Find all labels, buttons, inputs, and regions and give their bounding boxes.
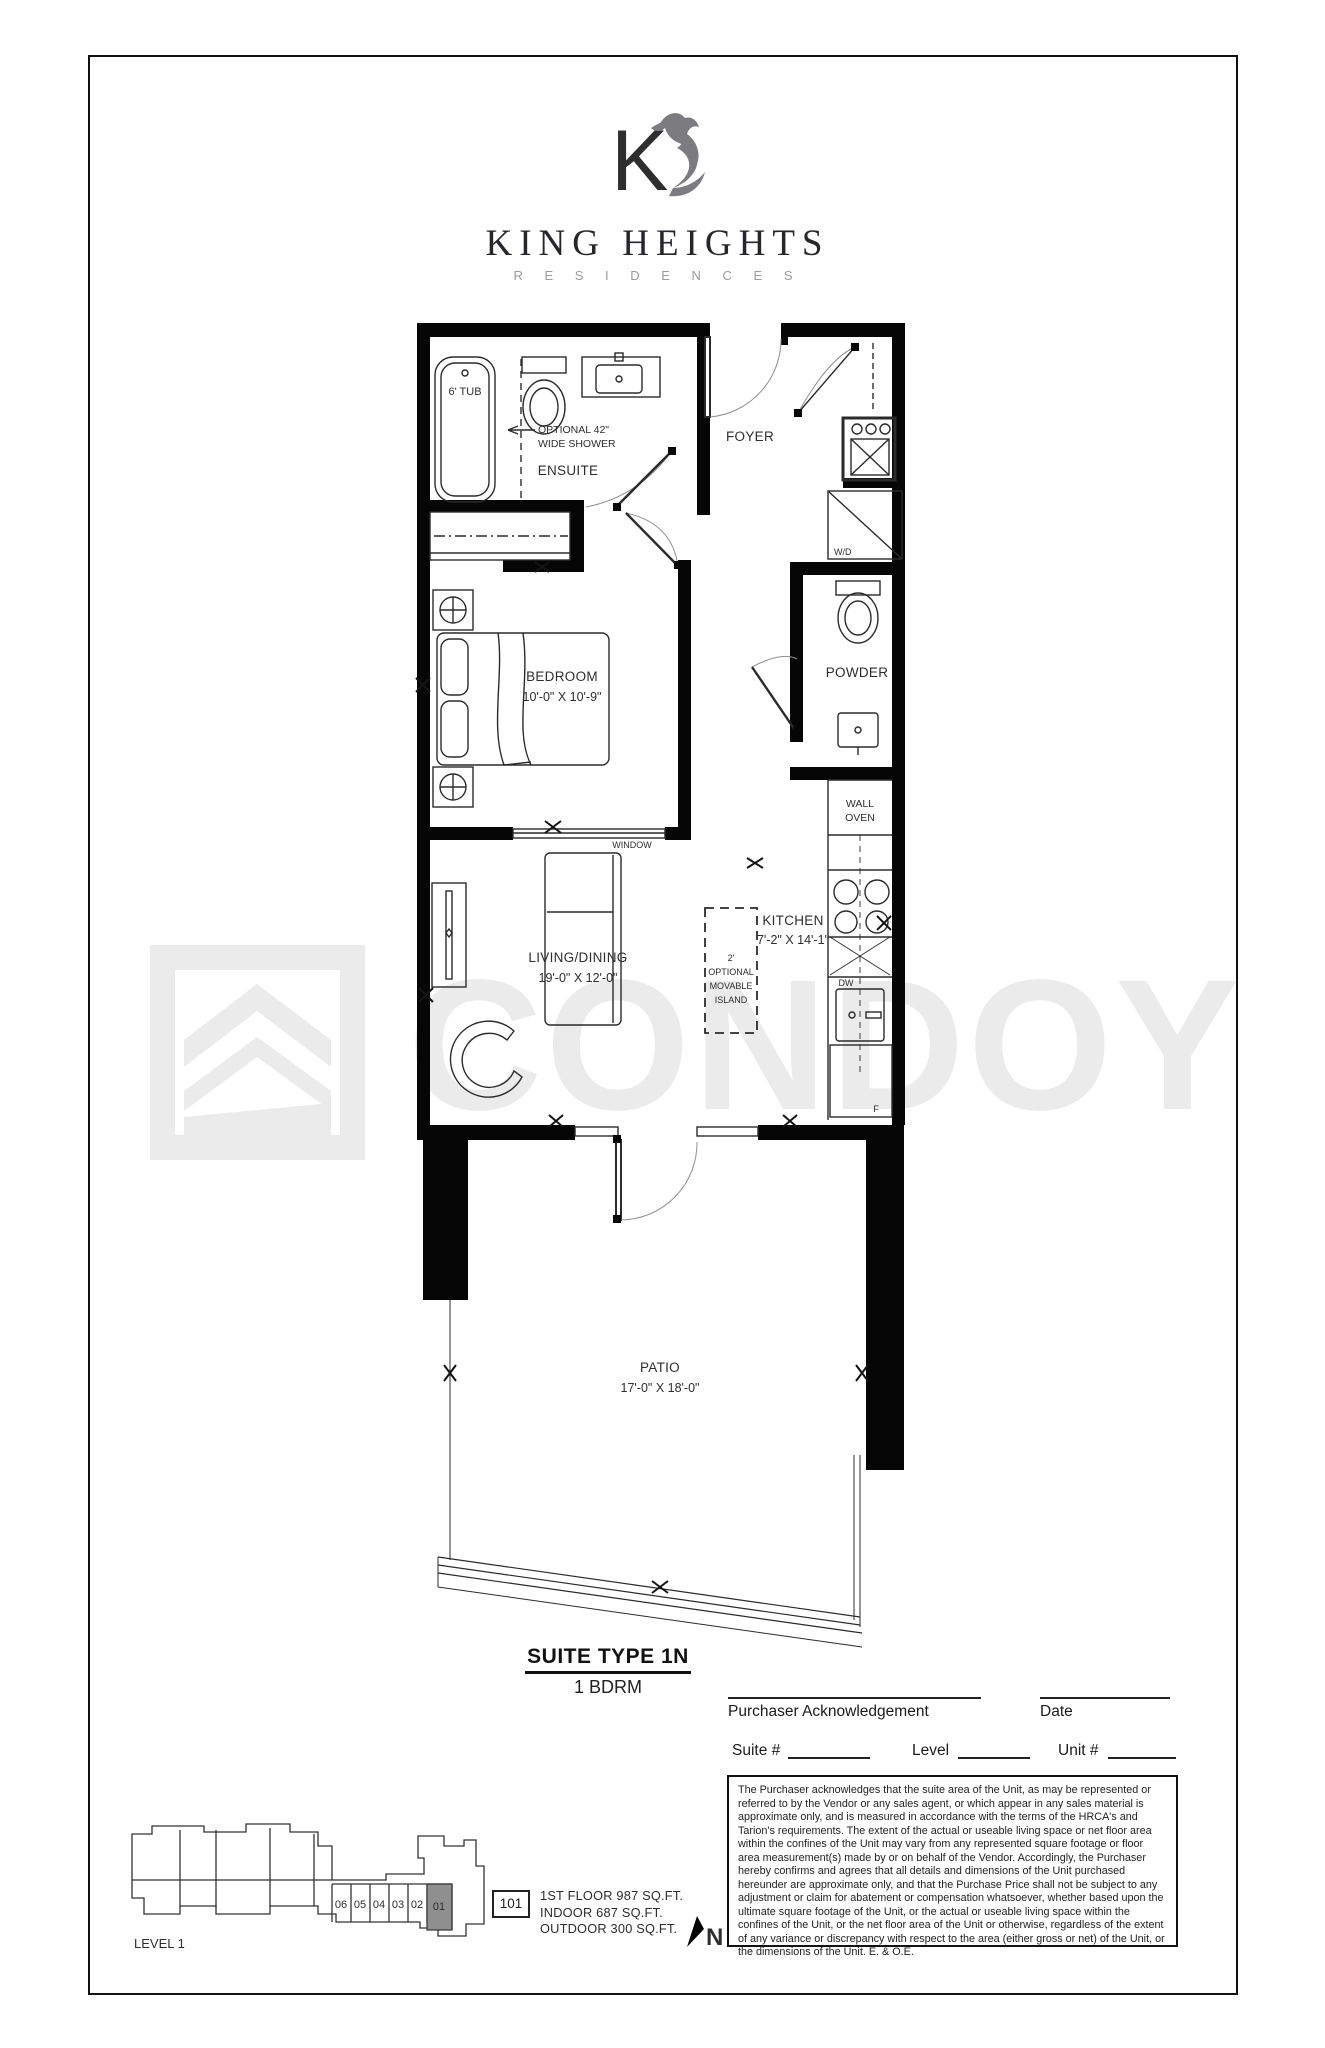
fridge-label: F <box>873 1104 879 1114</box>
north-arrow: N <box>684 1914 730 1950</box>
purchaser-signature-label: Purchaser Acknowledgement <box>728 1703 929 1721</box>
unit-number-label: Unit # <box>1058 1742 1099 1760</box>
patio-dims: 17'-0" X 18'-0" <box>621 1381 700 1395</box>
room-labels: 6' TUB OPTIONAL 42" WIDE SHOWER ENSUITE … <box>448 386 888 1395</box>
wd-label: W/D <box>834 547 852 557</box>
brand-tagline: R E S I D E N C E S <box>390 268 925 283</box>
shower-note-line2: WIDE SHOWER <box>538 438 616 450</box>
suite-title-block: SUITE TYPE 1N 1 BDRM <box>468 1645 748 1698</box>
keyplan-unit-05: 05 <box>354 1899 366 1911</box>
suite-number-line <box>788 1757 870 1759</box>
floorplan-drawing: 6' TUB OPTIONAL 42" WIDE SHOWER ENSUITE … <box>410 315 910 1655</box>
island-line1: 2' <box>728 953 735 963</box>
keyplan-unit-01: 01 <box>433 1901 445 1913</box>
keyplan-unit-02: 02 <box>411 1899 423 1911</box>
dimension-ticks <box>416 562 891 1593</box>
living-dims: 19'-0" X 12'-0" <box>539 971 618 985</box>
floorplan-page: { "brand": { "monogram": "K", "name": "K… <box>0 0 1325 2048</box>
kitchen-label: KITCHEN <box>762 913 823 928</box>
date-label: Date <box>1040 1703 1073 1721</box>
suite-subtitle: 1 BDRM <box>468 1677 748 1698</box>
unit-areas: 1ST FLOOR 987 SQ.FT. INDOOR 687 SQ.FT. O… <box>540 1888 683 1938</box>
legal-disclaimer-text: The Purchaser acknowledges that the suit… <box>729 1777 1176 1967</box>
brand-name: KING HEIGHTS <box>390 222 925 265</box>
keyplan-unit-06: 06 <box>335 1899 347 1911</box>
level-label: Level <box>912 1742 949 1760</box>
foyer-label: FOYER <box>726 429 774 444</box>
wall-oven-line2: OVEN <box>845 812 875 824</box>
island-line4: ISLAND <box>715 995 748 1005</box>
shower-note-line1: OPTIONAL 42" <box>538 424 609 436</box>
ensuite-label: ENSUITE <box>538 463 599 478</box>
purchaser-signature-line <box>728 1697 981 1699</box>
island-line2: OPTIONAL <box>708 967 754 977</box>
living-label: LIVING/DINING <box>528 950 627 965</box>
keyplan-unit-04: 04 <box>373 1899 385 1911</box>
north-arrow-icon <box>687 1916 704 1947</box>
date-line <box>1040 1697 1170 1699</box>
suite-type-title: SUITE TYPE 1N <box>525 1645 691 1674</box>
patio-label: PATIO <box>640 1360 680 1375</box>
wall-oven-line1: WALL <box>846 798 874 810</box>
bedroom-label: BEDROOM <box>526 669 598 684</box>
bedroom-dims: 10'-0" X 10'-9" <box>523 690 602 704</box>
unit-number-line <box>1108 1757 1176 1759</box>
window-label: WINDOW <box>612 840 652 850</box>
plan-lines <box>430 343 902 1647</box>
area-indoor: INDOOR 687 SQ.FT. <box>540 1905 683 1922</box>
powder-label: POWDER <box>826 665 889 680</box>
area-first-floor: 1ST FLOOR 987 SQ.FT. <box>540 1888 683 1905</box>
kitchen-dims: 7'-2" X 14'-1" <box>757 933 829 947</box>
island-line3: MOVABLE <box>710 981 753 991</box>
legal-disclaimer-box: The Purchaser acknowledges that the suit… <box>727 1775 1178 1947</box>
keyplan-unit-03: 03 <box>392 1899 404 1911</box>
keyplan-level-label: LEVEL 1 <box>134 1936 185 1951</box>
suite-number-label: Suite # <box>732 1742 780 1760</box>
brand-logo: K <box>605 108 715 208</box>
level-line <box>958 1757 1030 1759</box>
dw-label: DW <box>839 978 854 988</box>
unit-number-box: 101 <box>492 1890 530 1918</box>
north-label: N <box>706 1924 723 1950</box>
tub-label: 6' TUB <box>448 386 481 398</box>
area-outdoor: OUTDOOR 300 SQ.FT. <box>540 1921 683 1938</box>
watermark-logo <box>150 945 365 1160</box>
keyplan: 06 05 04 03 02 01 LEVEL 1 <box>118 1800 498 1955</box>
